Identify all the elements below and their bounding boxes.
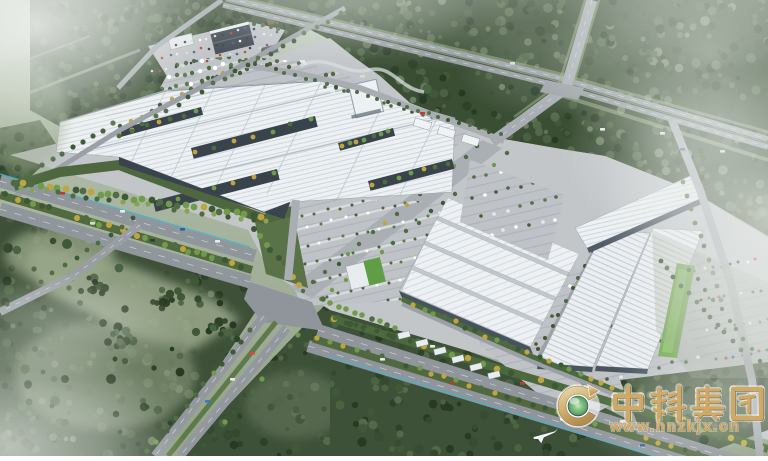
svg-text:www.hnzkjx.cn: www.hnzkjx.cn [609,418,740,435]
